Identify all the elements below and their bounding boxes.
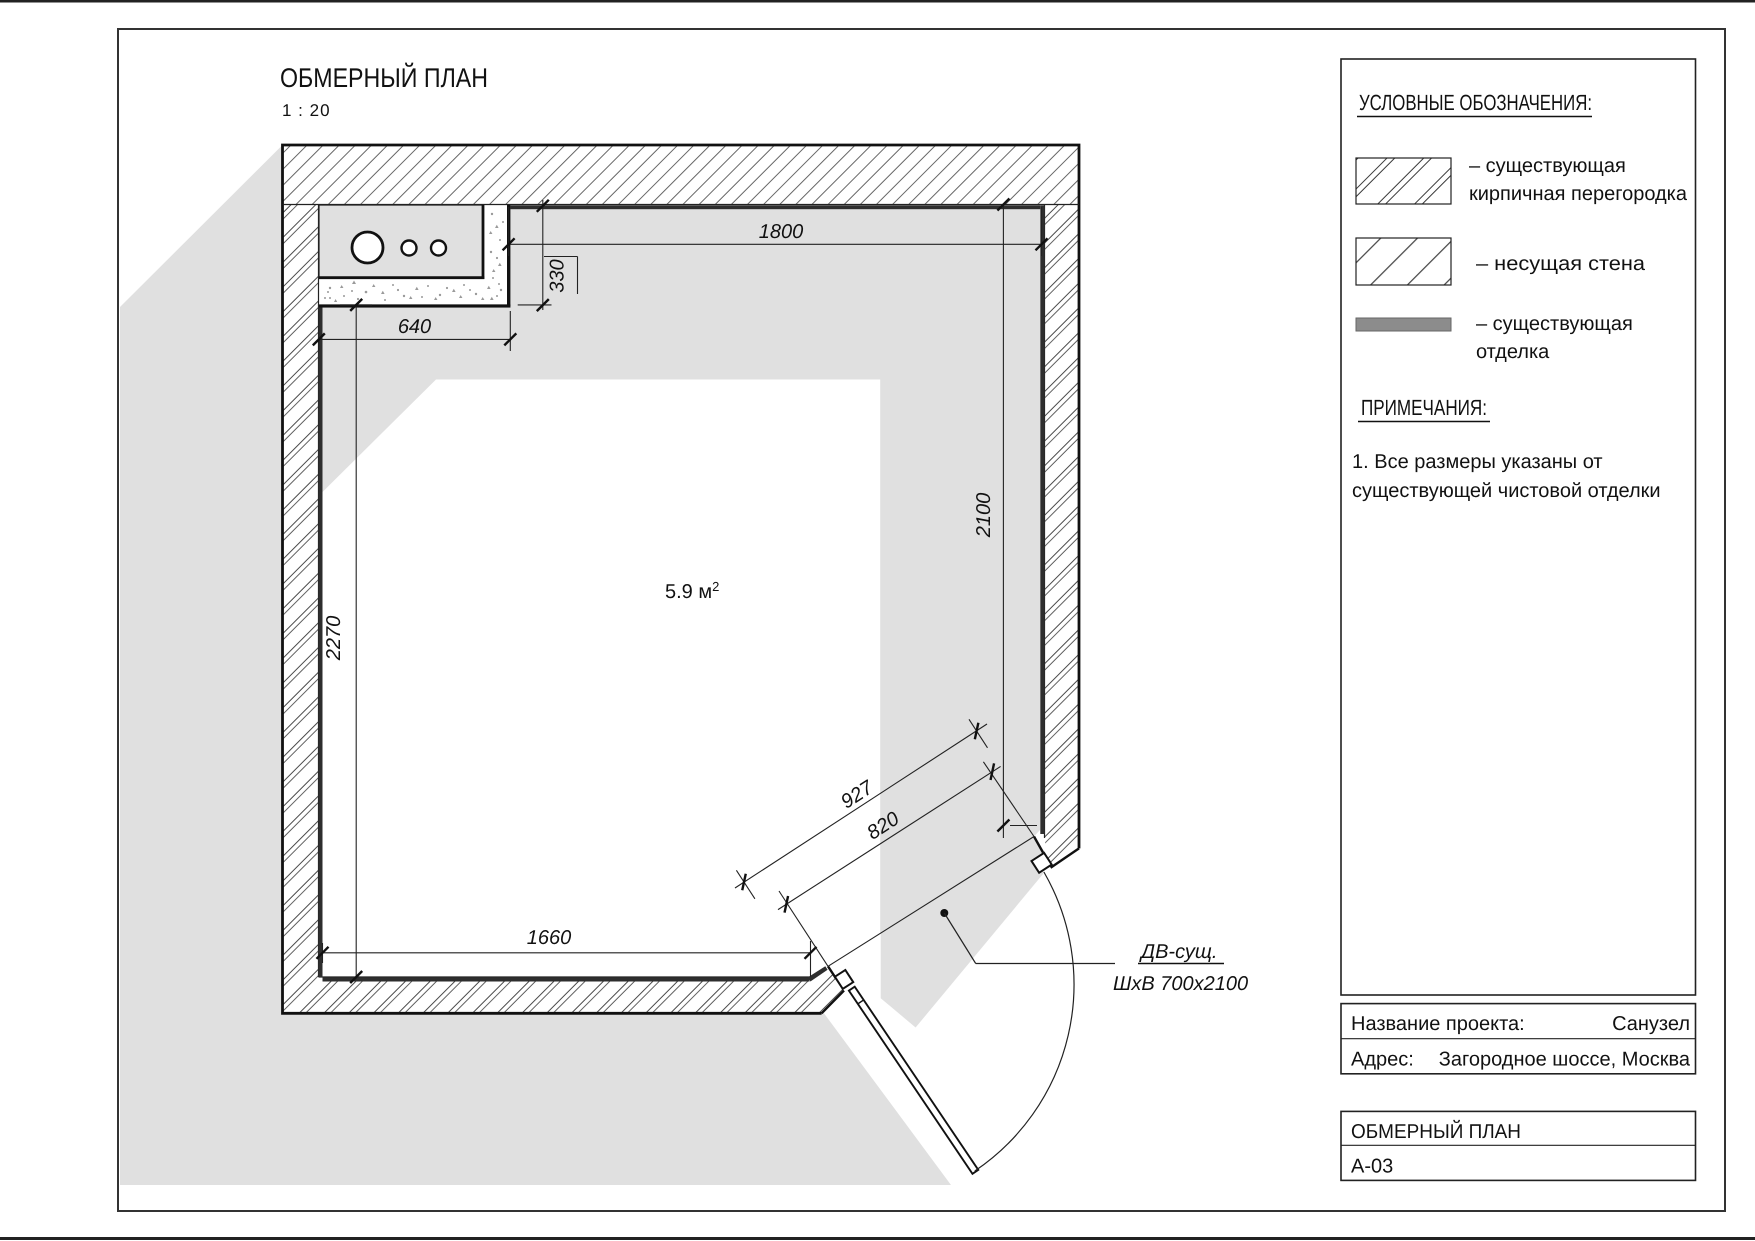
svg-text:1800: 1800	[759, 221, 804, 243]
svg-text:5.9 м2: 5.9 м2	[665, 579, 719, 603]
svg-text:330: 330	[547, 259, 569, 292]
svg-text:ПРИМЕЧАНИЯ:: ПРИМЕЧАНИЯ:	[1361, 395, 1487, 420]
svg-text:кирпичная перегородка: кирпичная перегородка	[1469, 183, 1688, 205]
svg-text:– существующая: – существующая	[1469, 155, 1626, 177]
svg-text:2100: 2100	[973, 493, 995, 539]
svg-text:2270: 2270	[323, 616, 345, 662]
svg-text:ОБМЕРНЫЙ ПЛАН: ОБМЕРНЫЙ ПЛАН	[280, 62, 488, 93]
svg-text:ШхВ 700х2100: ШхВ 700х2100	[1113, 973, 1248, 995]
svg-text:– несущая стена: – несущая стена	[1476, 253, 1646, 275]
svg-text:существующей чистовой отделки: существующей чистовой отделки	[1352, 480, 1661, 502]
svg-text:ОБМЕРНЫЙ ПЛАН: ОБМЕРНЫЙ ПЛАН	[1351, 1119, 1521, 1143]
svg-text:ДВ-сущ.: ДВ-сущ.	[1139, 941, 1217, 963]
svg-text:УСЛОВНЫЕ ОБОЗНАЧЕНИЯ:: УСЛОВНЫЕ ОБОЗНАЧЕНИЯ:	[1359, 90, 1592, 115]
svg-text:Санузел: Санузел	[1612, 1013, 1690, 1035]
svg-text:А-03: А-03	[1351, 1156, 1393, 1178]
svg-text:1 : 20: 1 : 20	[282, 101, 331, 120]
svg-text:– существующая: – существующая	[1476, 313, 1633, 335]
svg-text:Адрес:: Адрес:	[1351, 1049, 1414, 1071]
svg-text:отделка: отделка	[1476, 341, 1550, 363]
svg-text:1. Все размеры указаны от: 1. Все размеры указаны от	[1352, 451, 1603, 473]
svg-text:640: 640	[398, 316, 431, 338]
svg-text:Название проекта:: Название проекта:	[1351, 1013, 1525, 1035]
svg-text:1660: 1660	[527, 927, 572, 949]
svg-text:Загородное шоссе, Москва: Загородное шоссе, Москва	[1439, 1049, 1691, 1071]
